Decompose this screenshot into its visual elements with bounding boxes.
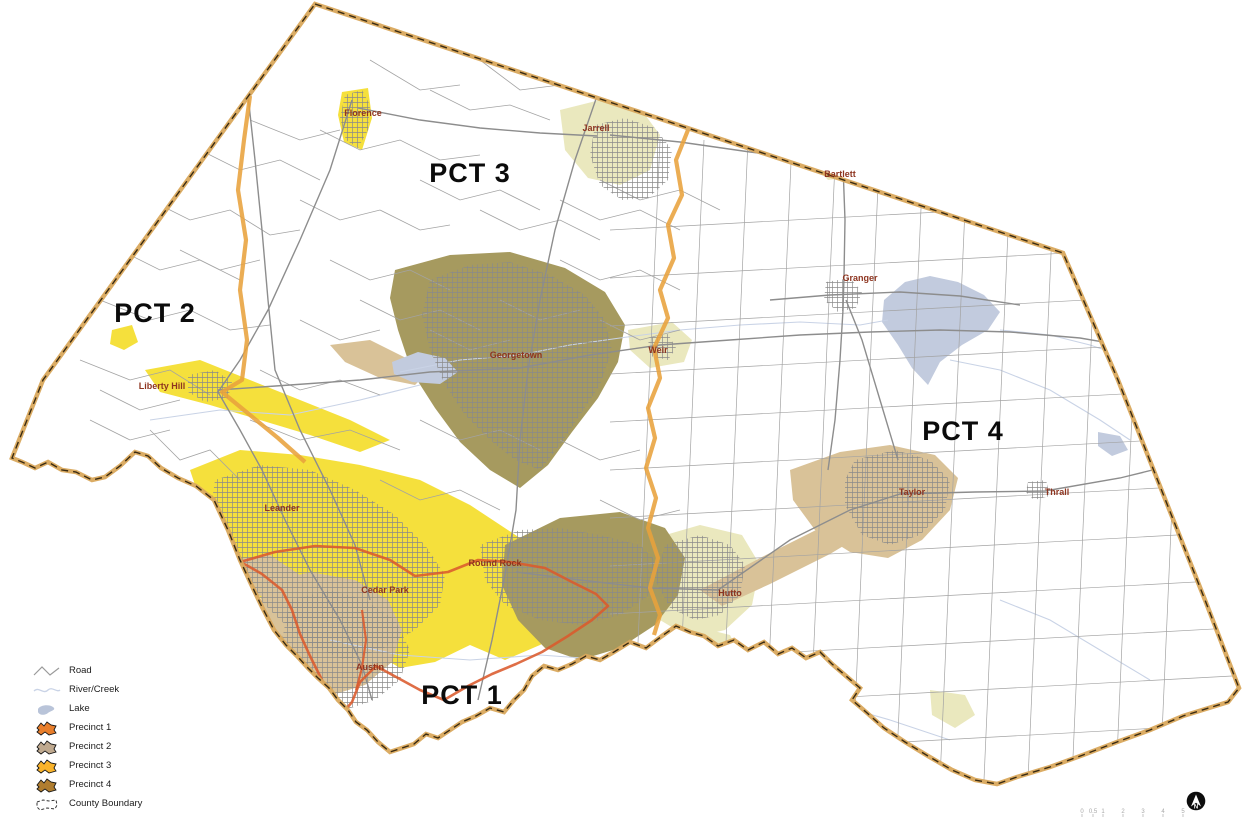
county-precinct-map: FlorenceJarrellBartlettGrangerGeorgetown… <box>0 0 1252 817</box>
legend-item-precinct-2: Precinct 2 <box>32 739 142 754</box>
map-content <box>80 60 1250 780</box>
city-label-cedar-park: Cedar Park <box>361 585 410 595</box>
precinct-map-page: FlorenceJarrellBartlettGrangerGeorgetown… <box>0 0 1252 817</box>
road <box>300 200 450 230</box>
legend-swatch-icon <box>32 739 62 755</box>
legend-item-label: River/Creek <box>69 684 119 695</box>
legend-item-road: Road <box>32 663 142 678</box>
legend-boundary-icon <box>32 796 62 812</box>
city-label-taylor: Taylor <box>899 487 926 497</box>
precinct-label-pct-1: PCT 1 <box>421 680 503 710</box>
legend-item-river-creek: River/Creek <box>32 682 142 697</box>
legend-item-precinct-3: Precinct 3 <box>32 758 142 773</box>
legend-item-label: County Boundary <box>69 798 142 809</box>
road <box>1160 140 1188 780</box>
road <box>250 120 340 140</box>
legend-road-icon <box>32 663 62 679</box>
road <box>90 420 170 440</box>
city-street-cluster <box>824 278 862 312</box>
legend-swatch-icon <box>32 758 62 774</box>
road <box>1116 140 1144 780</box>
map-legend: RoadRiver/CreekLakePrecinct 1Precinct 2P… <box>32 663 142 811</box>
road <box>620 60 700 80</box>
legend-lake-icon <box>32 701 62 717</box>
city-label-hutto: Hutto <box>718 588 742 598</box>
legend-item-label: Precinct 4 <box>69 779 111 790</box>
road <box>560 440 640 460</box>
legend-item-label: Precinct 3 <box>69 760 111 771</box>
city-label-bartlett: Bartlett <box>824 169 856 179</box>
road <box>480 210 600 240</box>
major-road <box>828 166 845 470</box>
road <box>430 90 550 120</box>
legend-item-county-boundary: County Boundary <box>32 796 142 811</box>
city-label-florence: Florence <box>344 108 382 118</box>
road <box>610 195 1250 230</box>
precinct-label-pct-3: PCT 3 <box>429 158 511 188</box>
precinct-label-pct-4: PCT 4 <box>922 416 1004 446</box>
city-label-weir: Weir <box>648 345 668 355</box>
road <box>632 140 660 780</box>
legend-item-precinct-4: Precinct 4 <box>32 777 142 792</box>
legend-item-lake: Lake <box>32 701 142 716</box>
road <box>676 140 704 780</box>
city-label-granger: Granger <box>842 273 878 283</box>
city-label-round-rock: Round Rock <box>469 558 523 568</box>
legend-item-precinct-1: Precinct 1 <box>32 720 142 735</box>
legend-item-label: Lake <box>69 703 90 714</box>
road <box>370 60 460 90</box>
road <box>300 320 380 340</box>
city-label-jarrell: Jarrell <box>582 123 609 133</box>
legend-item-label: Road <box>69 665 92 676</box>
urban-area-patch <box>930 690 975 728</box>
city-label-thrall: Thrall <box>1045 487 1070 497</box>
city-label-liberty-hill: Liberty Hill <box>139 381 186 391</box>
road <box>180 250 260 270</box>
legend-item-label: Precinct 1 <box>69 722 111 733</box>
road <box>610 675 1250 710</box>
city-label-georgetown: Georgetown <box>490 350 543 360</box>
road <box>1028 140 1056 780</box>
road <box>120 250 240 280</box>
road <box>560 200 680 230</box>
road <box>610 243 1250 278</box>
road <box>720 140 748 780</box>
precinct-label-pct-2: PCT 2 <box>114 298 196 328</box>
city-street-cluster <box>845 450 950 545</box>
road <box>200 150 320 180</box>
road <box>940 140 968 780</box>
legend-river-icon <box>32 682 62 698</box>
legend-item-label: Precinct 2 <box>69 741 111 752</box>
road <box>150 200 300 235</box>
urban-area-patch <box>110 325 138 350</box>
river-creek-line <box>1000 600 1150 680</box>
legend-swatch-icon <box>32 720 62 736</box>
legend-swatch-icon <box>32 777 62 793</box>
city-label-leander: Leander <box>264 503 300 513</box>
city-label-austin: Austin <box>356 662 384 672</box>
